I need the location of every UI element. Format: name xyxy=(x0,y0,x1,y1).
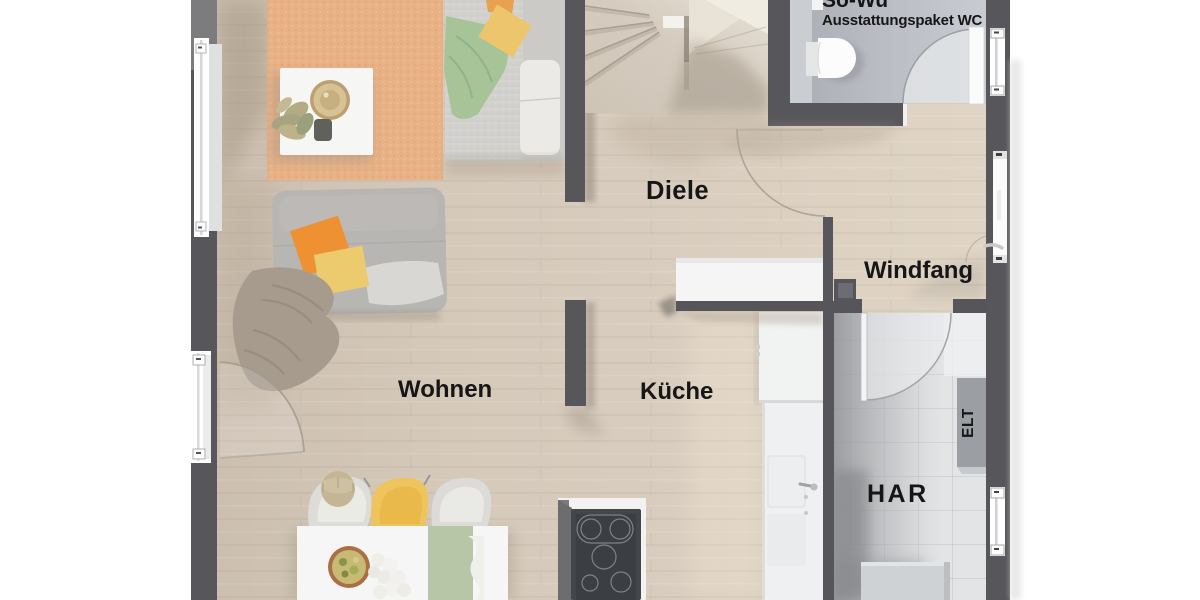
svg-text:Sö-Wu: Sö-Wu xyxy=(822,0,888,12)
svg-text:HAR: HAR xyxy=(867,480,929,508)
svg-text:Küche: Küche xyxy=(640,378,713,405)
svg-text:Diele: Diele xyxy=(646,177,709,205)
svg-text:ELT: ELT xyxy=(960,408,977,438)
svg-text:Ausstattungspaket WC: Ausstattungspaket WC xyxy=(822,12,983,29)
svg-text:Wohnen: Wohnen xyxy=(398,376,492,403)
svg-text:Windfang: Windfang xyxy=(864,257,973,284)
